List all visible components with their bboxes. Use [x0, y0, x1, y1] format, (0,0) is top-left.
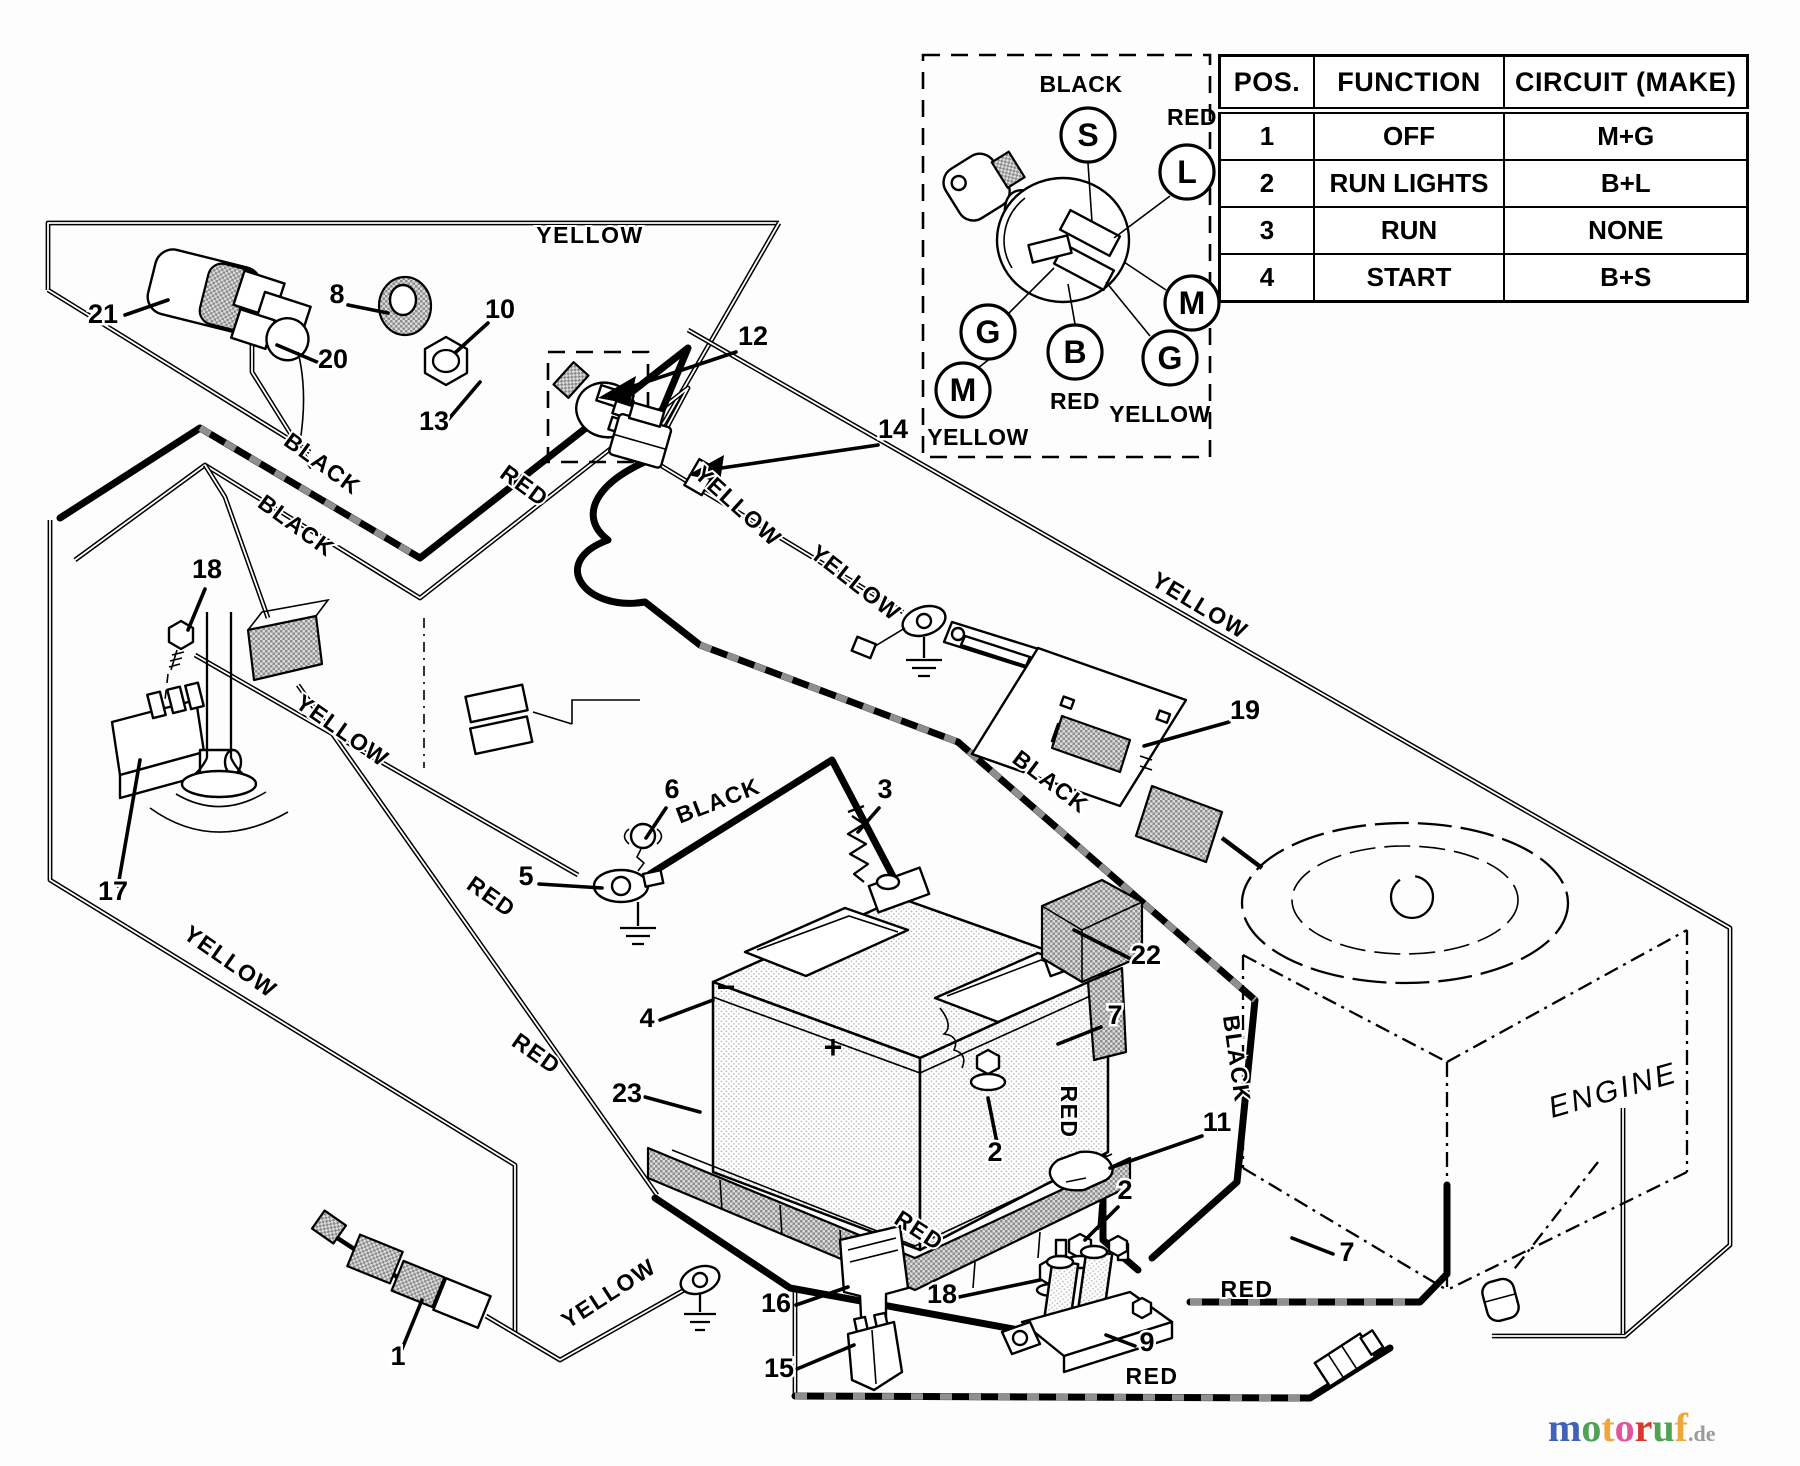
wire-color-label: BLACK — [672, 773, 763, 829]
wire-color-label: YELLOW — [690, 460, 787, 551]
wire-color-label: YELLOW — [536, 222, 643, 248]
table-cell: 2 — [1220, 160, 1315, 207]
part-label-18: 18 — [192, 554, 222, 584]
part-label-6: 6 — [664, 774, 679, 804]
table-cell: 4 — [1220, 254, 1315, 302]
part10-nut — [425, 337, 467, 385]
part1-harness — [312, 1211, 491, 1328]
wire-color-label: BLACK — [279, 427, 365, 500]
table-cell: START — [1314, 254, 1504, 302]
svg-text:S: S — [1077, 117, 1098, 153]
part-label-23: 23 — [612, 1078, 642, 1108]
table-cell: 1 — [1220, 111, 1315, 161]
switch-wire-color-label: RED — [1050, 388, 1100, 414]
switch-wire-color-label: BLACK — [1040, 71, 1123, 97]
part-label-7: 7 — [1339, 1237, 1354, 1267]
watermark-letter: f — [1675, 1405, 1688, 1450]
part-label-2: 2 — [1117, 1175, 1132, 1205]
switch-wire-color-label: YELLOW — [927, 424, 1028, 450]
part5-ring-terminal — [594, 870, 663, 902]
wire-color-label: RED — [507, 1028, 565, 1080]
part-label-7: 7 — [1107, 1000, 1122, 1030]
part-label-18: 18 — [927, 1279, 957, 1309]
table-row: 4STARTB+S — [1220, 254, 1748, 302]
table-header: POS. — [1220, 56, 1315, 111]
table-cell: NONE — [1504, 207, 1748, 254]
table-cell: RUN — [1314, 207, 1504, 254]
switch-terminal-B: B — [1048, 325, 1102, 379]
svg-text:B: B — [1063, 334, 1086, 370]
wiring-diagram-page: SLGMBMG ENGINE — [0, 0, 1800, 1466]
switch-wire-color-label: RED — [1167, 104, 1217, 130]
part8-grommet — [379, 277, 431, 335]
table-header: FUNCTION — [1314, 56, 1504, 111]
part-label-14: 14 — [878, 414, 908, 444]
wire-color-label: RED — [496, 459, 554, 511]
part-label-10: 10 — [485, 294, 515, 324]
ground-symbol-battery — [620, 902, 656, 944]
svg-text:M: M — [1179, 285, 1206, 321]
switch-terminal-M: M — [1165, 276, 1219, 330]
part-label-15: 15 — [764, 1353, 794, 1383]
part-label-12: 12 — [738, 321, 768, 351]
part-label-20: 20 — [318, 344, 348, 374]
svg-text:M: M — [950, 372, 977, 408]
table-row: 1OFFM+G — [1220, 111, 1748, 161]
switch-terminal-S: S — [1061, 108, 1115, 162]
part-label-9: 9 — [1139, 1327, 1154, 1357]
svg-text:−: − — [717, 969, 736, 1005]
part-label-5: 5 — [518, 861, 533, 891]
engine-label: ENGINE — [1545, 1056, 1682, 1124]
wire-color-label: YELLOW — [557, 1253, 661, 1333]
svg-text:L: L — [1177, 154, 1197, 190]
part6-wingnut — [625, 824, 662, 871]
watermark-letter: r — [1635, 1405, 1653, 1450]
part-label-1: 1 — [390, 1341, 405, 1371]
table-header: CIRCUIT (MAKE) — [1504, 56, 1748, 111]
watermark-letter: u — [1652, 1405, 1674, 1450]
switch-terminal-M: M — [936, 363, 990, 417]
part-label-2: 2 — [987, 1137, 1002, 1167]
table-cell: B+S — [1504, 254, 1748, 302]
ignition-switch-drawing: SLGMBMG — [936, 108, 1219, 417]
watermark-letter: o — [1581, 1405, 1601, 1450]
plug-boot — [1480, 1276, 1521, 1323]
part-label-11: 11 — [1203, 1107, 1232, 1137]
table-cell: 3 — [1220, 207, 1315, 254]
switch-terminal-G: G — [961, 305, 1015, 359]
part-label-4: 4 — [639, 1003, 654, 1033]
wire-color-label: YELLOW — [291, 689, 394, 772]
switch-terminal-G: G — [1143, 331, 1197, 385]
part-label-21: 21 — [88, 299, 118, 329]
watermark-letter: o — [1615, 1405, 1635, 1450]
wire-color-label: RED — [1125, 1363, 1178, 1389]
part19-bracket — [944, 622, 1222, 862]
part-label-8: 8 — [329, 279, 344, 309]
part15-fuse — [848, 1313, 902, 1390]
wire-color-label: RED — [462, 871, 520, 923]
components: − + — [112, 246, 1521, 1390]
spark-connector — [1315, 1327, 1386, 1386]
part-label-3: 3 — [877, 774, 892, 804]
table-row: 2RUN LIGHTSB+L — [1220, 160, 1748, 207]
motoruf-watermark: motoruf.de — [1548, 1406, 1716, 1456]
switch-wire-color-label: YELLOW — [1109, 401, 1210, 427]
wire-color-label: RED — [1056, 1085, 1082, 1138]
part-label-16: 16 — [761, 1288, 791, 1318]
clip-connectors — [464, 685, 535, 754]
wire-color-label: YELLOW — [806, 539, 907, 626]
svg-text:G: G — [1158, 340, 1183, 376]
part-label-13: 13 — [419, 406, 449, 436]
part-label-22: 22 — [1131, 940, 1161, 970]
part-label-17: 17 — [98, 876, 128, 906]
svg-text:+: + — [824, 1029, 843, 1065]
switch-terminal-L: L — [1160, 145, 1214, 199]
watermark-letter: t — [1601, 1405, 1614, 1450]
function-table: POS.FUNCTIONCIRCUIT (MAKE) 1OFFM+G2RUN L… — [1218, 54, 1749, 303]
watermark-suffix: .de — [1688, 1421, 1716, 1446]
table-cell: B+L — [1504, 160, 1748, 207]
wire-color-label: RED — [1220, 1276, 1273, 1302]
engine: ENGINE — [1242, 823, 1687, 1290]
svg-text:G: G — [976, 314, 1001, 350]
part-label-19: 19 — [1230, 695, 1260, 725]
watermark-letter: m — [1548, 1405, 1581, 1450]
ground-symbol-left — [677, 1261, 723, 1330]
table-cell: OFF — [1314, 111, 1504, 161]
table-cell: RUN LIGHTS — [1314, 160, 1504, 207]
table-row: 3RUNNONE — [1220, 207, 1748, 254]
table-cell: M+G — [1504, 111, 1748, 161]
part17-relay-box — [248, 600, 328, 680]
